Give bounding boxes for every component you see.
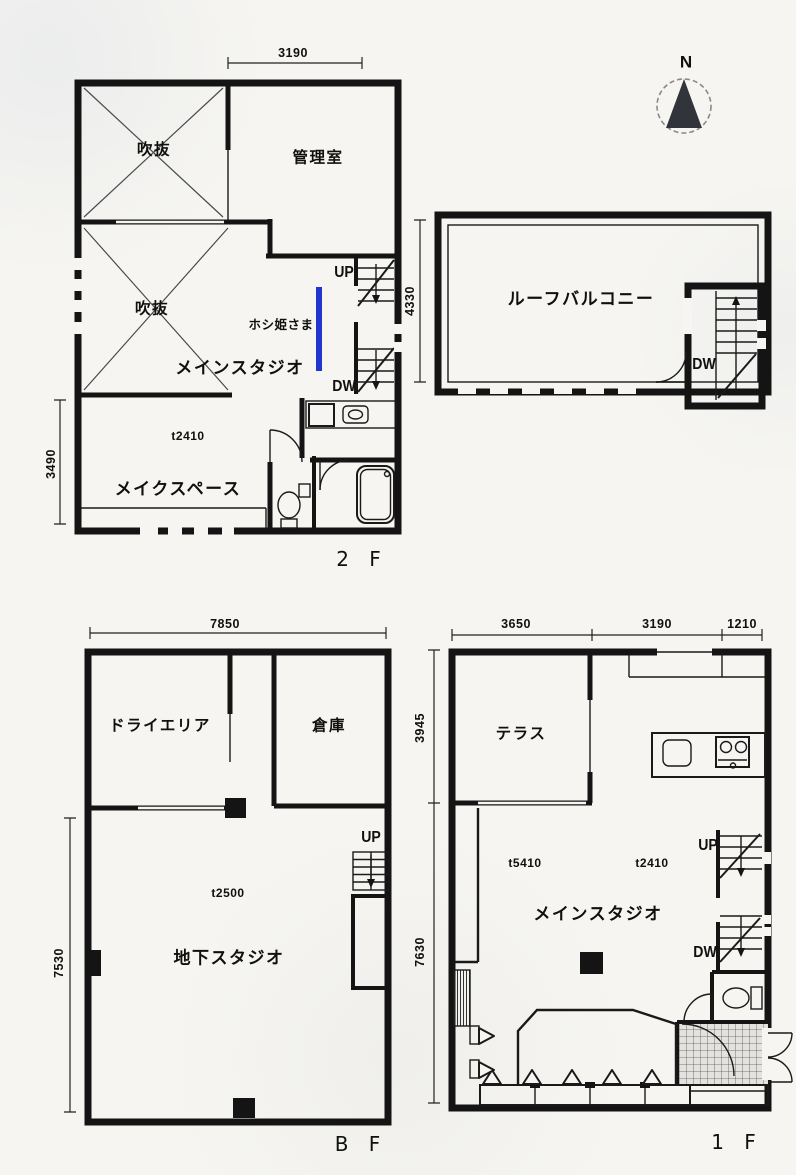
dim-1f-top-right: 1210 [727, 618, 757, 631]
note-ceiling-1f-left: t5410 [508, 857, 541, 869]
room-label-void-top: 吹抜 [137, 142, 171, 158]
dim-roof-left: 4330 [404, 286, 417, 316]
bathtub-icon-2f [310, 456, 398, 531]
void-cross-marks [84, 88, 228, 390]
plan-bf-linework [64, 627, 389, 1122]
dim-lines-2f [54, 57, 362, 524]
entrance-step [690, 1085, 768, 1105]
stair-up-2f: UP [334, 265, 354, 281]
duct-wall [455, 808, 478, 962]
washer-icon [309, 404, 334, 426]
room-label-roof-balcony: ルーフバルコニー [508, 292, 655, 309]
column [225, 798, 246, 818]
dim-2f-top: 3190 [278, 47, 308, 60]
room-label-main-studio-1f: メインスタジオ [533, 907, 662, 924]
note-ceiling-1f-right: t2410 [635, 857, 668, 869]
dim-1f-left-upper: 3945 [414, 713, 427, 743]
note-ceiling-2f: t2410 [171, 430, 204, 442]
stairs-bf-icon [353, 852, 389, 988]
room-label-basement-studio: 地下スタジオ [174, 951, 285, 968]
room-label-admin: 管理室 [292, 150, 343, 166]
window-band [480, 1082, 690, 1105]
louver-icon [454, 970, 470, 1026]
room-label-storage: 倉庫 [312, 718, 346, 734]
compass-north-label: N [680, 54, 692, 71]
dim-1f-top-mid: 3190 [642, 618, 672, 631]
room-label-dry-area: ドライエリア [109, 718, 211, 734]
column [88, 950, 101, 976]
room-label-void-bottom: 吹抜 [135, 301, 169, 317]
stair-down-1f: DW [693, 945, 716, 961]
door-arc [684, 994, 712, 1022]
stairs-roof-icon [656, 286, 766, 406]
door-arc [270, 430, 302, 462]
plan-roof-linework [414, 215, 768, 406]
dim-bf-left: 7530 [53, 948, 66, 978]
floorplan-page: N 3190 3490 吹抜 管理室 吹抜 ホシ姫さま メインスタジオ t241… [0, 0, 796, 1175]
stairs-1f-icon [714, 830, 771, 972]
door-arc [320, 460, 350, 490]
stair-down-roof: DW [692, 357, 715, 373]
stair-up-bf: UP [361, 830, 381, 846]
floor-label-bf: B F [335, 1134, 388, 1154]
column [233, 1098, 255, 1118]
dim-2f-left: 3490 [45, 449, 58, 479]
triangle-markers [470, 1026, 661, 1084]
plan-1f-linework [428, 629, 792, 1108]
note-ceiling-bf: t2500 [211, 887, 244, 899]
kitchen-island-icon [652, 733, 765, 777]
note-hoshihime: ホシ姫さま [248, 319, 313, 332]
laundry-counter-icon [302, 398, 396, 458]
dim-1f-left-lower: 7630 [414, 937, 427, 967]
floor-label-2f: 2 F [336, 549, 388, 569]
dim-lines-bf [64, 627, 386, 1112]
toilet-icon-1f [684, 972, 768, 1022]
floor-label-1f: 1 F [711, 1132, 763, 1152]
dim-bf-top: 7850 [210, 618, 240, 631]
sink-icon-2f [343, 406, 368, 423]
room-label-make-space: メイクスペース [115, 482, 242, 499]
stove-icon [716, 737, 749, 768]
room-label-terrace: テラス [496, 726, 547, 742]
door-arc [656, 352, 686, 382]
sink-icon-1f [663, 740, 691, 766]
plan-2f-linework [54, 57, 403, 535]
room-label-main-studio-2f: メインスタジオ [175, 361, 304, 378]
hoshihime-pole [316, 287, 322, 371]
compass-icon [657, 79, 711, 133]
stair-down-2f: DW [332, 379, 355, 395]
column [580, 952, 603, 974]
dim-1f-top-left: 3650 [501, 618, 531, 631]
entrance-tile [677, 1022, 792, 1085]
floorplan-linework [0, 0, 796, 1175]
stair-up-1f: UP [698, 838, 718, 854]
